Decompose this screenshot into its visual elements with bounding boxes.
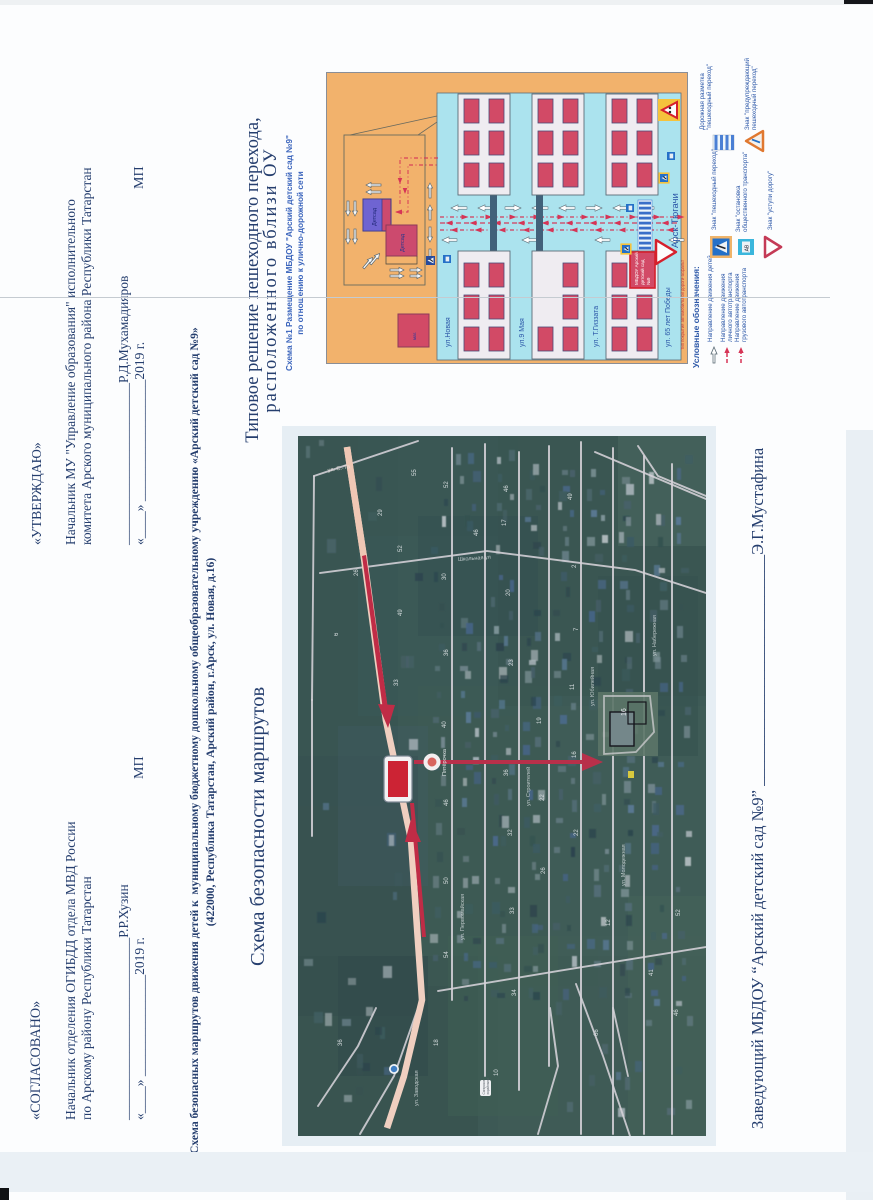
svg-text:19: 19 xyxy=(537,717,543,724)
svg-text:54: 54 xyxy=(444,951,450,958)
svg-text:16: 16 xyxy=(621,708,628,716)
svg-text:40: 40 xyxy=(442,721,448,728)
svg-text:30: 30 xyxy=(442,573,448,580)
svg-text:36: 36 xyxy=(338,1039,344,1046)
svg-text:23: 23 xyxy=(509,659,515,666)
svg-text:ул.9 Мая: ул.9 Мая xyxy=(519,318,526,347)
svg-text:Арск-Тюгачи: Арск-Тюгачи xyxy=(670,193,681,248)
svg-text:10: 10 xyxy=(494,1069,500,1076)
svg-text:29: 29 xyxy=(378,509,384,516)
svg-text:55: 55 xyxy=(412,469,418,476)
svg-text:ул.Новая: ул.Новая xyxy=(445,317,452,347)
svg-text:Детсад: Детсад xyxy=(372,207,378,226)
svg-text:АВ: АВ xyxy=(745,244,751,251)
svg-text:33: 33 xyxy=(510,907,516,914)
svg-text:6: 6 xyxy=(334,632,340,636)
svg-text:26: 26 xyxy=(354,569,360,576)
svg-text:11: 11 xyxy=(570,683,576,690)
svg-text:ул. Строителей: ул. Строителей xyxy=(525,767,532,806)
svg-text:маг.: маг. xyxy=(412,332,417,340)
svg-text:Тип покрытия автомобильной дор: Тип покрытия автомобильной дороги-асфаль… xyxy=(680,260,685,350)
svg-text:18: 18 xyxy=(434,1039,440,1046)
svg-text:52: 52 xyxy=(444,481,450,488)
svg-text:7: 7 xyxy=(574,627,580,631)
svg-text:33: 33 xyxy=(394,679,400,686)
svg-text:26: 26 xyxy=(541,867,547,874)
svg-text:52: 52 xyxy=(676,909,682,916)
svg-text:12: 12 xyxy=(606,919,612,926)
svg-text:46: 46 xyxy=(474,529,480,536)
svg-text:46: 46 xyxy=(504,485,510,492)
svg-text:хоçайлыгы: хоçайлыгы xyxy=(486,1078,490,1095)
svg-text:17: 17 xyxy=(502,519,508,526)
svg-text:2: 2 xyxy=(572,564,578,568)
svg-text:36: 36 xyxy=(504,769,510,776)
svg-text:46: 46 xyxy=(674,1009,680,1016)
svg-text:ул. Юбилейная: ул. Юбилейная xyxy=(589,667,596,706)
svg-text:ул. Набережная: ул. Набережная xyxy=(652,615,658,656)
svg-text:22: 22 xyxy=(540,794,546,801)
svg-text:№9: №9 xyxy=(646,277,651,285)
svg-text:49: 49 xyxy=(398,609,404,616)
svg-text:16: 16 xyxy=(572,751,578,758)
svg-text:66: 66 xyxy=(594,1029,600,1036)
svg-text:49: 49 xyxy=(568,493,574,500)
svg-text:ул. Первомайская: ул. Первомайская xyxy=(459,894,466,940)
svg-text:20: 20 xyxy=(506,589,512,596)
svg-text:Детсад: Детсад xyxy=(400,233,406,252)
svg-text:46: 46 xyxy=(444,799,450,806)
svg-text:детский сад: детский сад xyxy=(639,259,645,285)
svg-text:50: 50 xyxy=(444,877,450,884)
svg-text:36: 36 xyxy=(444,649,450,656)
svg-text:Пятёрочка: Пятёрочка xyxy=(442,748,448,776)
svg-text:41: 41 xyxy=(649,969,655,976)
svg-text:ул. Т.Гиззата: ул. Т.Гиззата xyxy=(593,306,600,347)
svg-text:ул. Заводская: ул. Заводская xyxy=(414,1070,420,1106)
svg-text:ул. Молодежная: ул. Молодежная xyxy=(621,844,627,886)
svg-text:22: 22 xyxy=(574,829,580,836)
svg-text:52: 52 xyxy=(398,545,404,552)
svg-text:34: 34 xyxy=(512,989,518,996)
svg-text:32: 32 xyxy=(508,829,514,836)
svg-text:МБДОУ Арский: МБДОУ Арский xyxy=(633,252,639,285)
